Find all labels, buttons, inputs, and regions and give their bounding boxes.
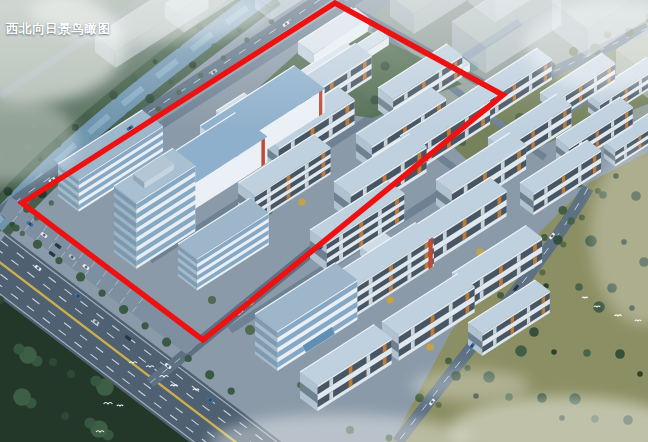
aerial-render-viewport: 西北向日景鸟瞰图 [0,0,648,442]
aerial-scene [0,0,648,442]
view-title-label: 西北向日景鸟瞰图 [6,21,111,38]
bird [582,297,588,298]
